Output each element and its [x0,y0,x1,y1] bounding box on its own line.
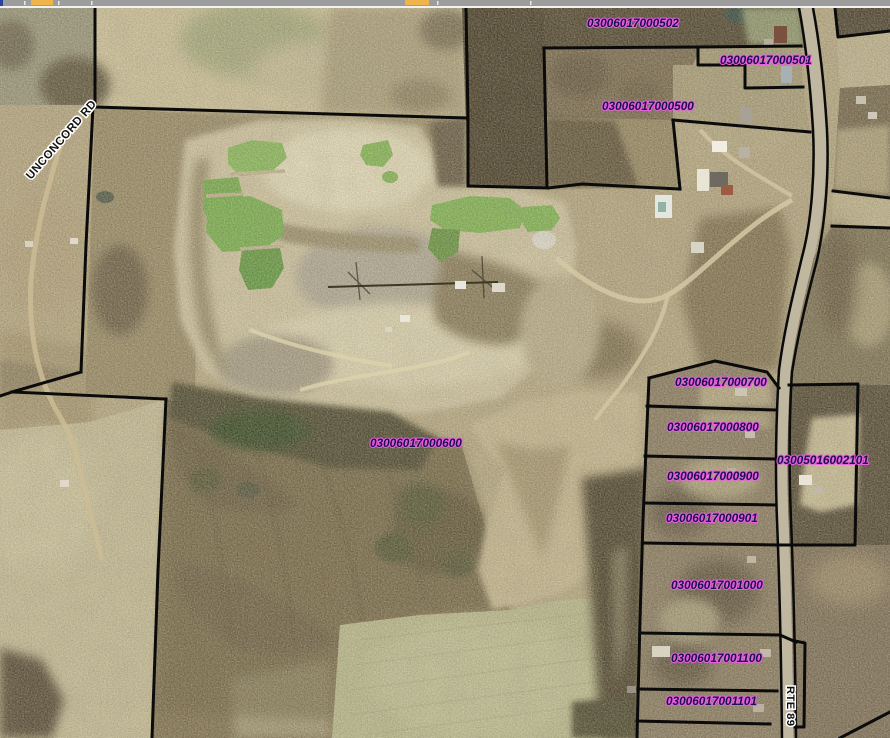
svg-text:03005016002101: 03005016002101 [777,453,869,467]
svg-text:03006017000501: 03006017000501 [720,53,812,67]
svg-text:03006017000600: 03006017000600 [370,436,462,450]
svg-text:03006017000500: 03006017000500 [602,99,694,113]
svg-text:03006017000700: 03006017000700 [675,375,767,389]
svg-text:03006017000502: 03006017000502 [587,16,679,30]
svg-text:03006017000901: 03006017000901 [666,511,758,525]
svg-text:03006017001101: 03006017001101 [666,694,757,708]
svg-text:RTE 89: RTE 89 [784,686,796,726]
svg-text:03006017001100: 03006017001100 [671,651,762,665]
svg-text:03006017000800: 03006017000800 [667,420,759,434]
svg-text:03006017000900: 03006017000900 [667,469,759,483]
svg-text:03006017001000: 03006017001000 [671,578,763,592]
